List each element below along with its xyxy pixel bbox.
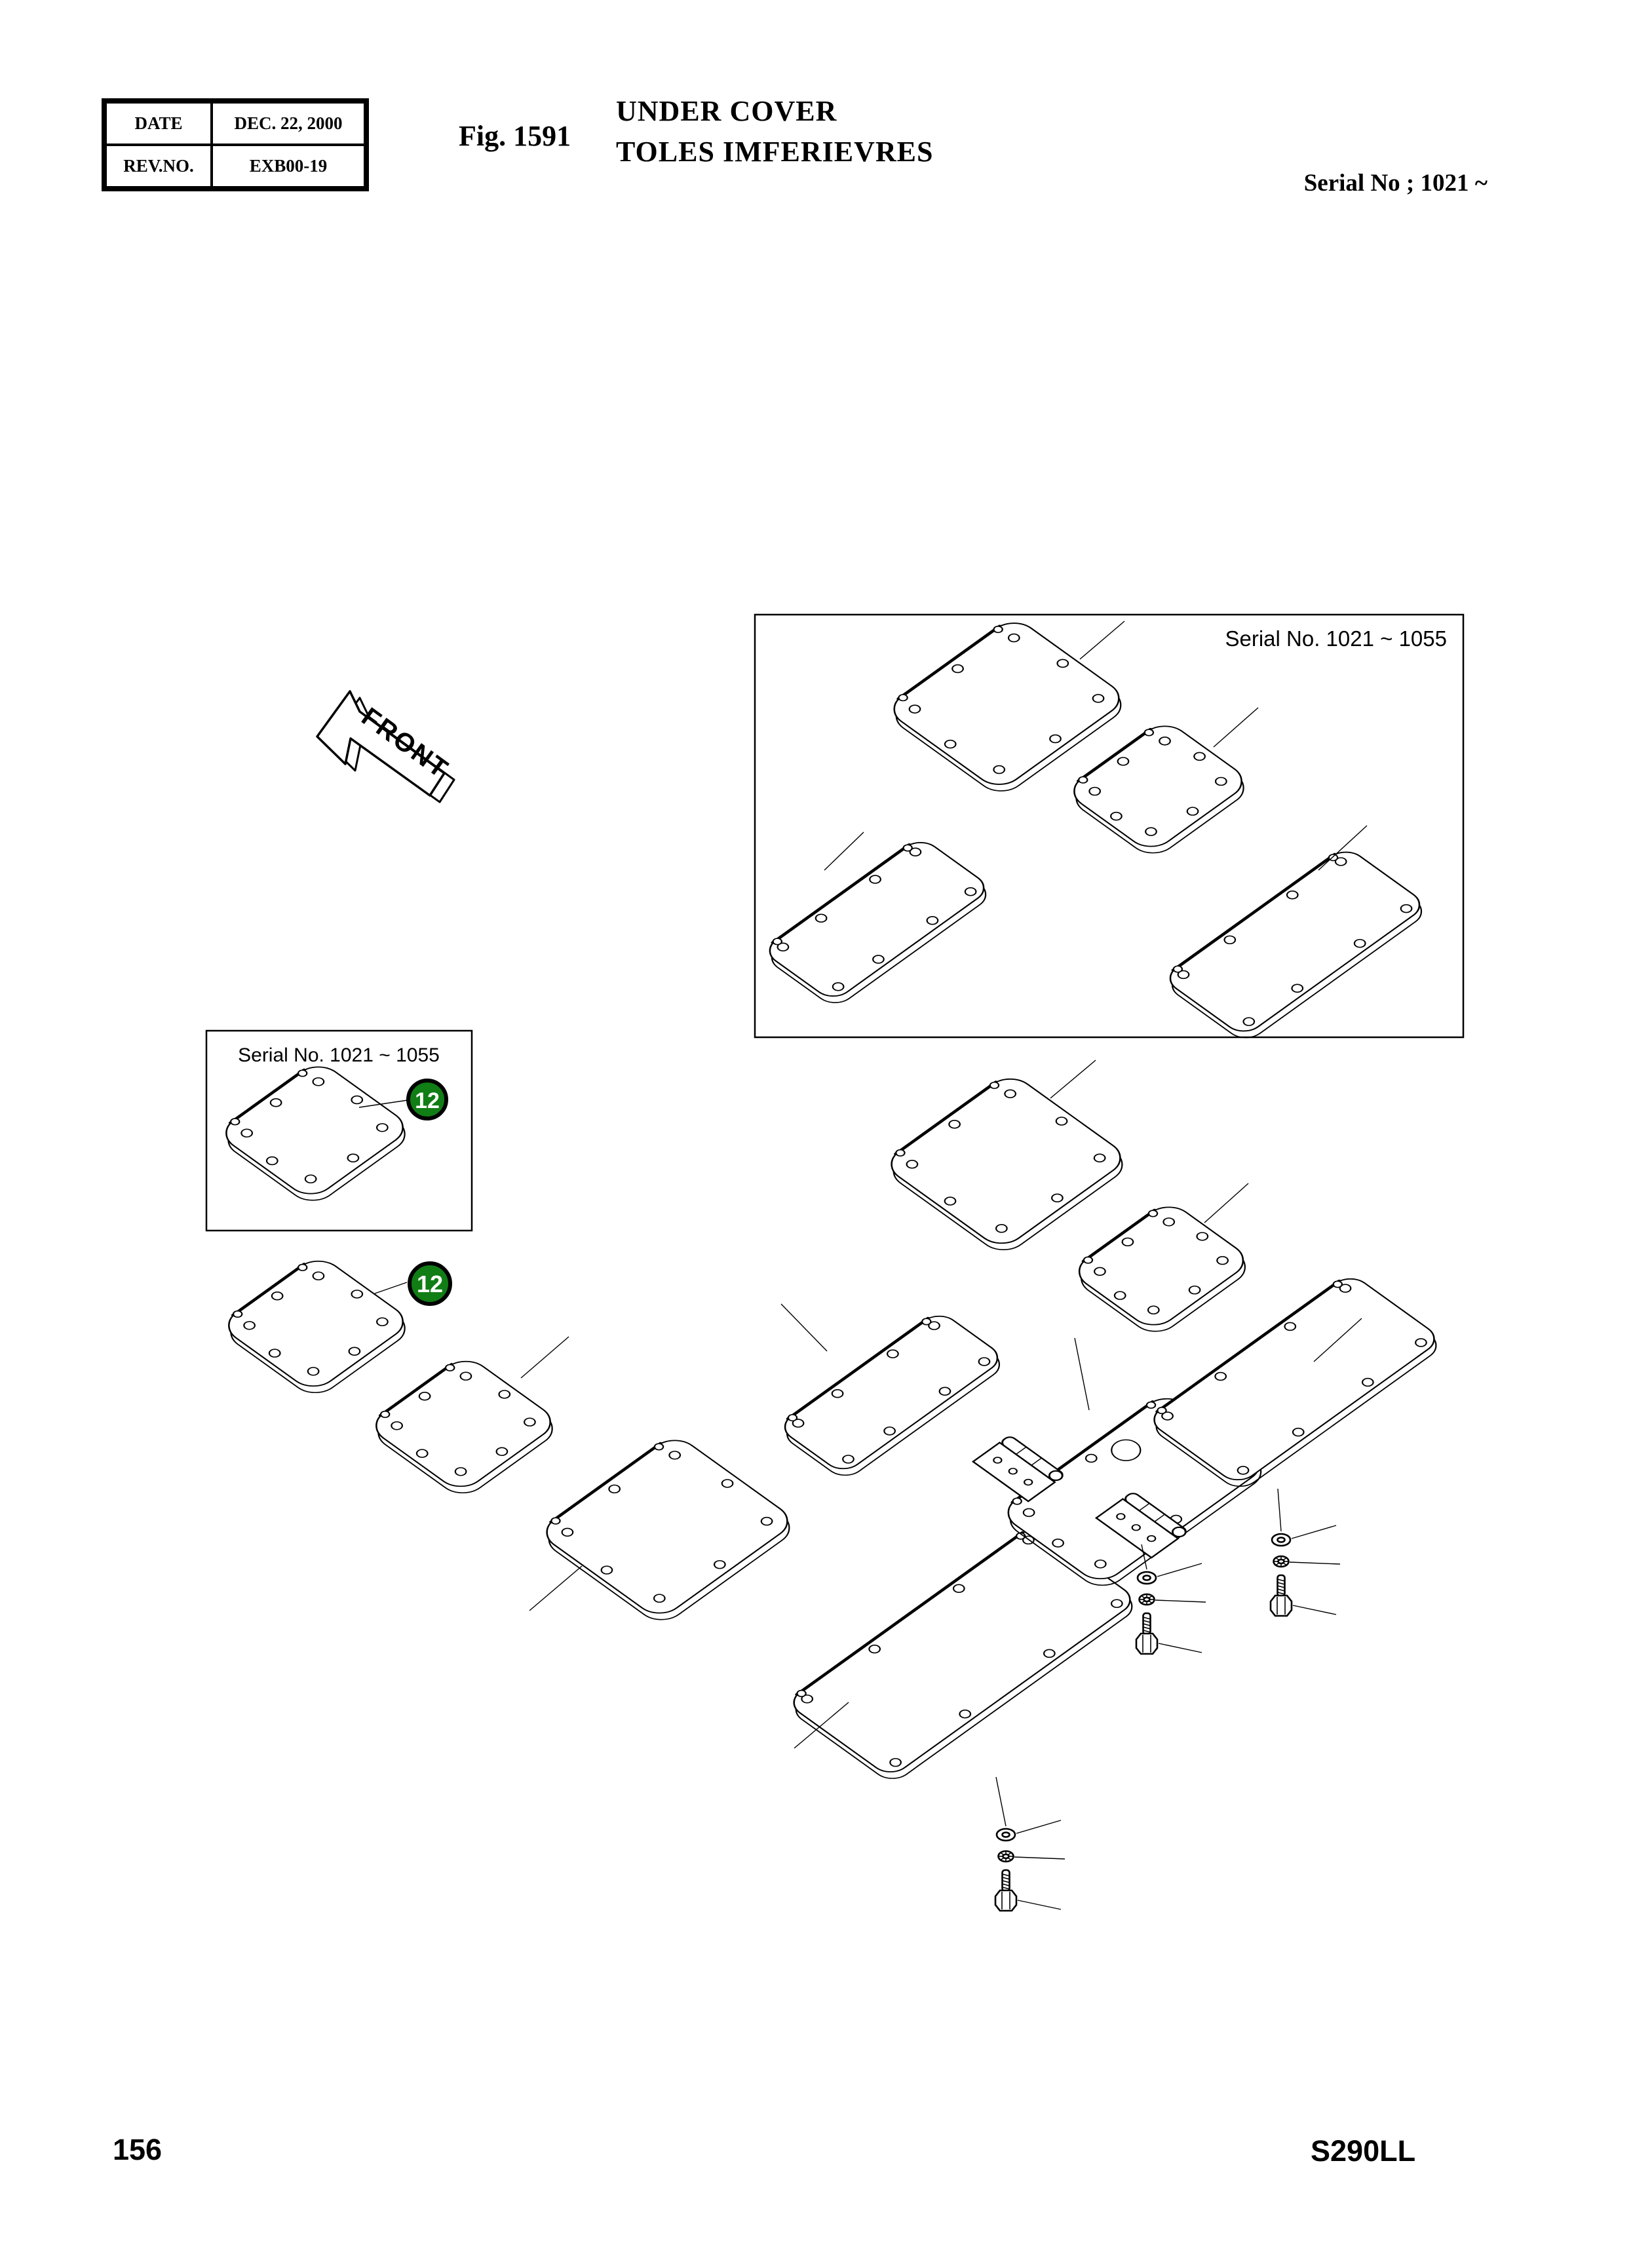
callout-12-main: 12	[410, 1263, 450, 1304]
front-direction-arrow: FRONT	[317, 691, 454, 802]
bolt-stack-right	[1271, 1489, 1340, 1616]
leader-line	[521, 1337, 569, 1378]
inset-top-serial-label: Serial No. 1021 ~ 1055	[1225, 626, 1448, 651]
panel-long-narrow	[775, 1309, 1008, 1482]
panel-square-large-top	[880, 1071, 1132, 1257]
model-code: S290LL	[1311, 2134, 1554, 2168]
leader-line	[1050, 1060, 1096, 1098]
inset-top-panel-long-right	[1161, 845, 1430, 1044]
leader-line	[781, 1304, 827, 1351]
diagram-parts	[215, 615, 1445, 1911]
hex-bolt	[1271, 1575, 1292, 1616]
manual-page: DATE DEC. 22, 2000 REV.NO. EXB00-19 Fig.…	[0, 0, 1652, 2258]
lock-washer	[1274, 1556, 1289, 1567]
inset-left-panel	[215, 1059, 415, 1208]
panel-square-1	[217, 1253, 415, 1400]
hex-bolt	[995, 1870, 1016, 1911]
flat-washer	[997, 1829, 1015, 1841]
leader-line	[375, 1282, 407, 1293]
inset-left-serial-label: Serial No. 1021 ~ 1055	[238, 1044, 440, 1066]
inset-top-panel-small	[1063, 718, 1254, 860]
leader-line	[1204, 1183, 1248, 1223]
svg-text:12: 12	[417, 1271, 443, 1297]
leader-line	[1080, 621, 1124, 659]
panel-square-small-top	[1067, 1199, 1255, 1339]
flat-washer	[1272, 1534, 1290, 1546]
callout-12-inset: 12	[408, 1081, 446, 1119]
under-cover-parts-diagram: Serial No. 1021 ~ 1055 Serial No. 1021 ~…	[0, 0, 1652, 2258]
leader-line	[824, 832, 864, 870]
leader-line	[1075, 1338, 1089, 1410]
leader-line	[1214, 708, 1258, 747]
svg-text:12: 12	[415, 1088, 440, 1113]
flat-washer	[1138, 1572, 1156, 1584]
inset-top-panel-long-left	[760, 835, 994, 1008]
panel-square-3	[535, 1432, 799, 1627]
lock-washer	[1140, 1594, 1155, 1605]
leader-line	[529, 1566, 582, 1611]
page-number: 156	[113, 2133, 162, 2167]
panel-square-2	[364, 1353, 562, 1500]
bolt-stack-bottom	[995, 1777, 1065, 1911]
hex-bolt	[1136, 1613, 1157, 1654]
lock-washer	[999, 1851, 1014, 1862]
